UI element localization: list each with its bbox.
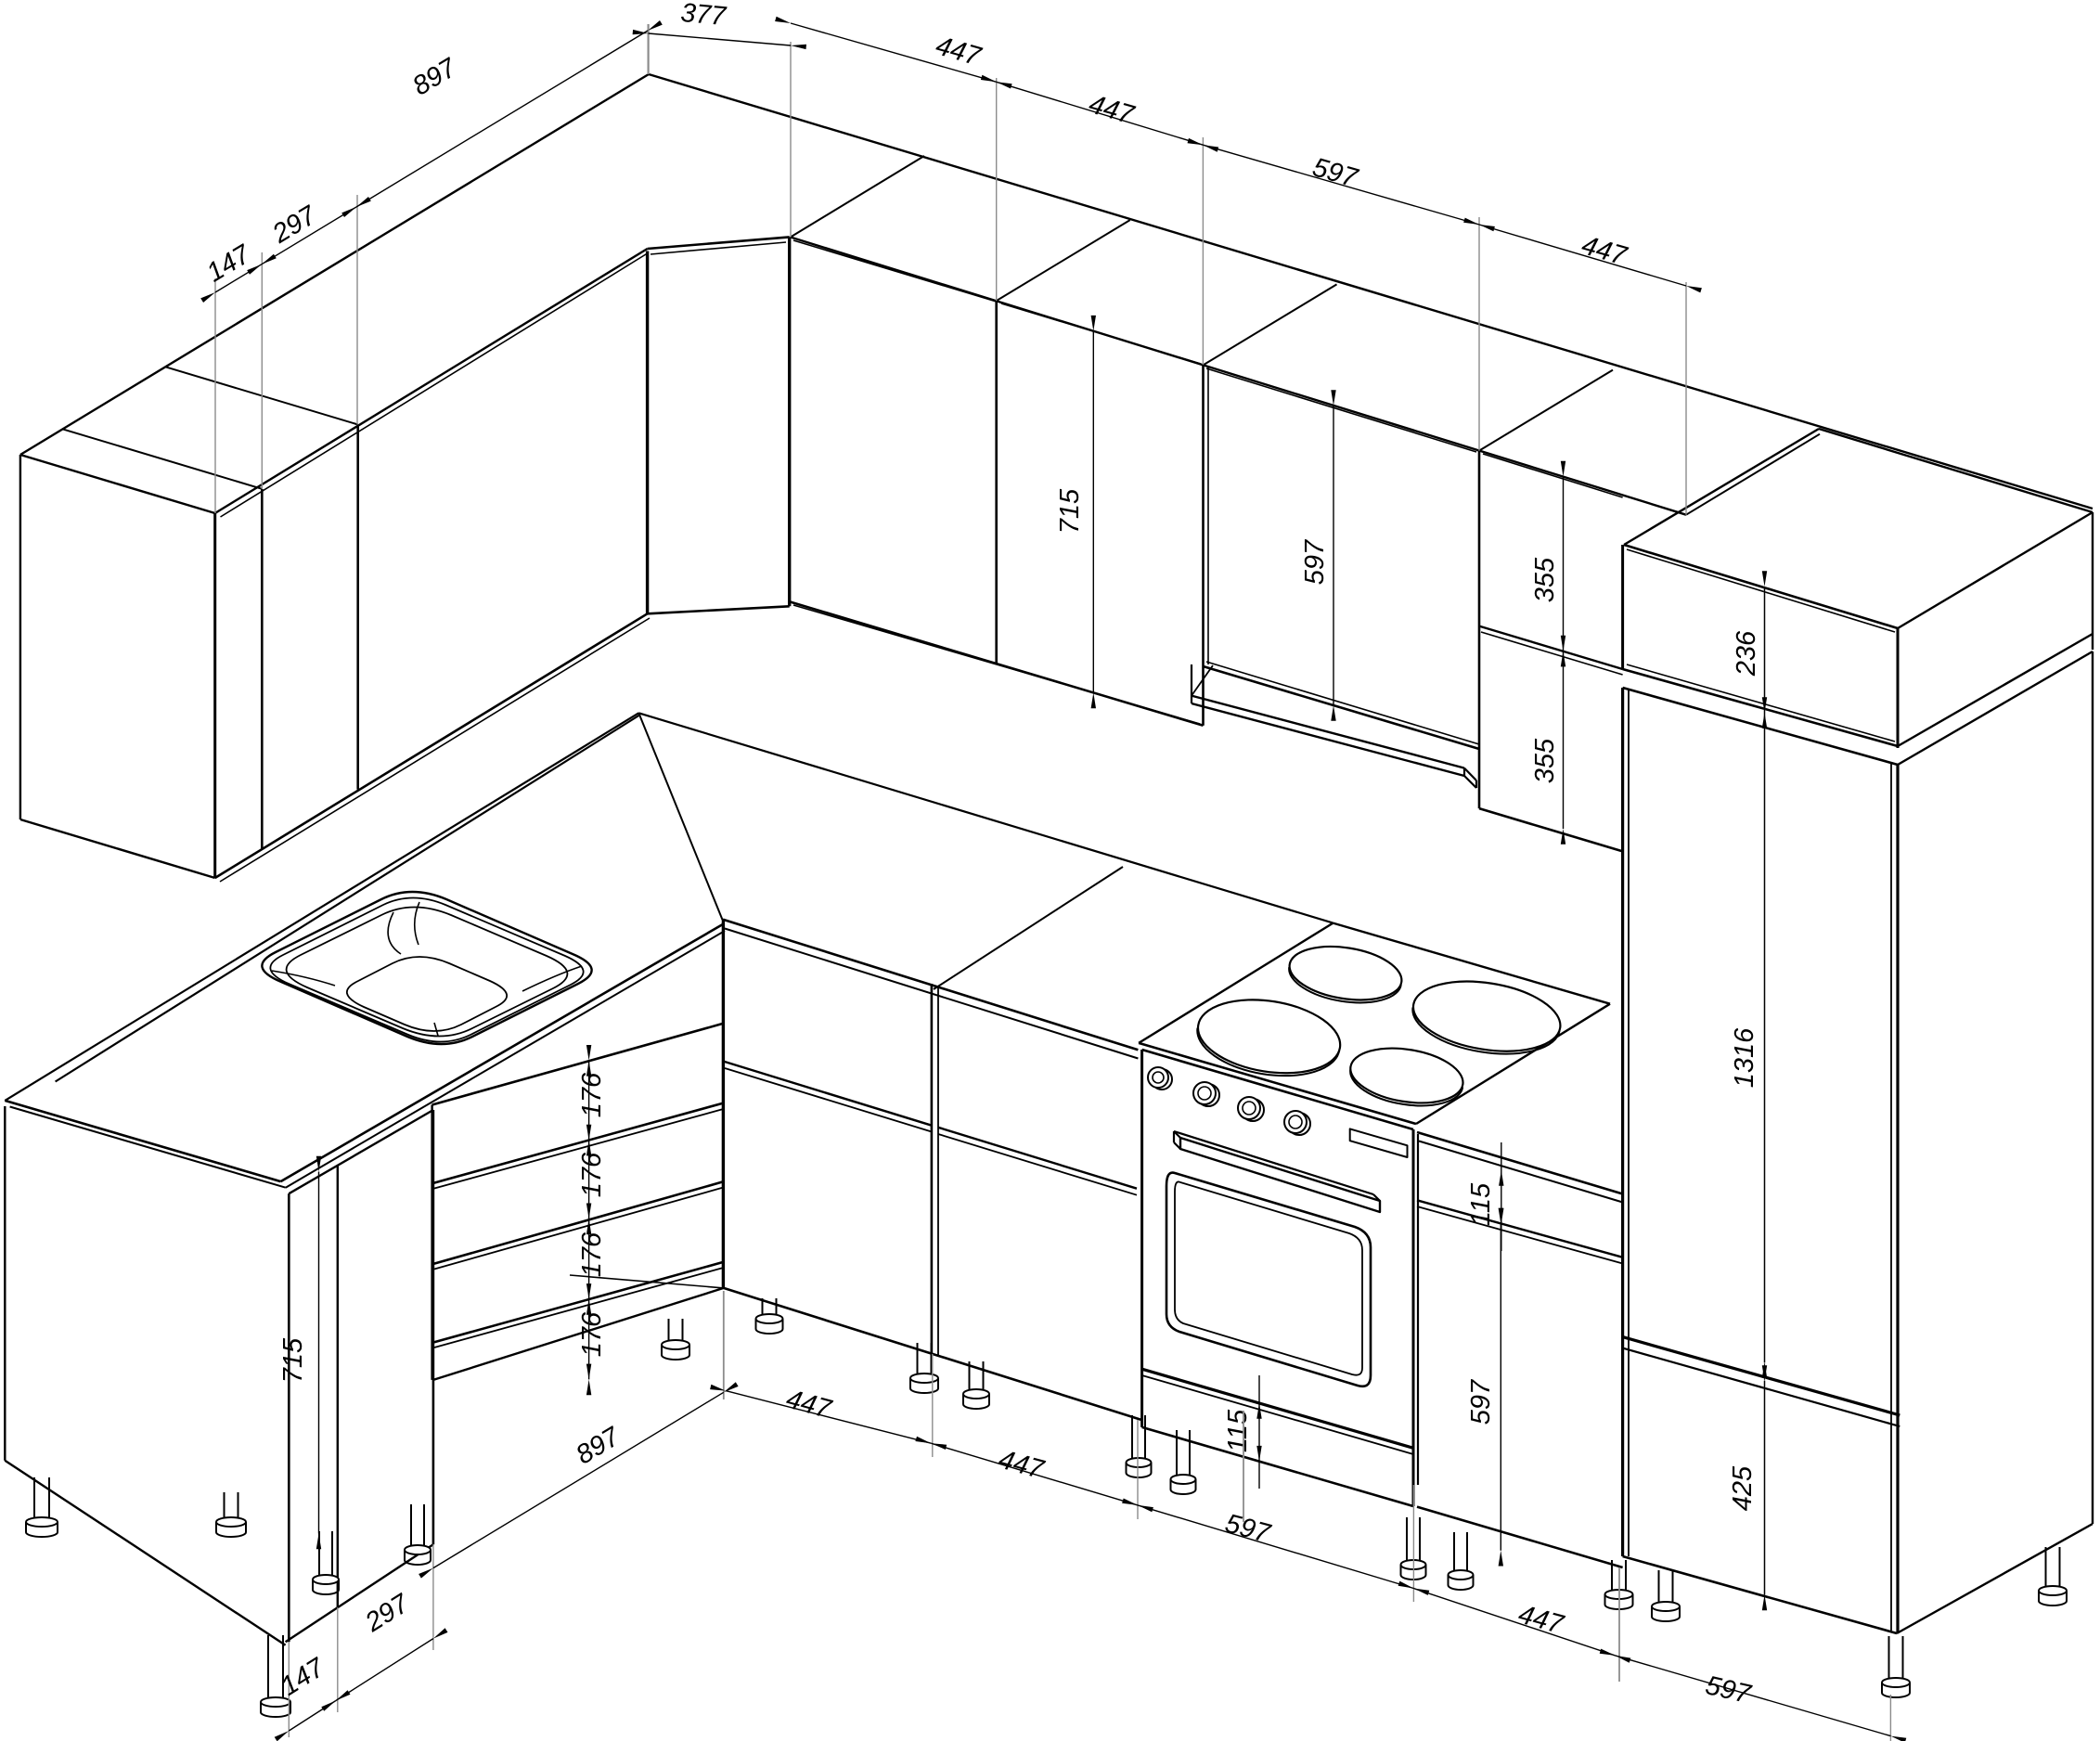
- svg-text:176: 176: [577, 1152, 607, 1197]
- svg-text:355: 355: [1530, 557, 1560, 602]
- svg-text:597: 597: [1466, 1378, 1496, 1425]
- svg-text:715: 715: [1055, 488, 1085, 534]
- svg-text:176: 176: [577, 1311, 607, 1357]
- svg-text:236: 236: [1732, 630, 1761, 677]
- svg-text:377: 377: [679, 0, 728, 32]
- svg-text:176: 176: [577, 1232, 607, 1277]
- svg-text:115: 115: [1223, 1409, 1253, 1452]
- svg-text:115: 115: [1466, 1182, 1496, 1226]
- svg-text:425: 425: [1728, 1465, 1758, 1511]
- svg-text:176: 176: [577, 1072, 607, 1117]
- svg-text:1316: 1316: [1730, 1027, 1759, 1088]
- svg-text:355: 355: [1530, 738, 1560, 783]
- svg-text:715: 715: [278, 1337, 308, 1383]
- svg-text:597: 597: [1300, 538, 1330, 585]
